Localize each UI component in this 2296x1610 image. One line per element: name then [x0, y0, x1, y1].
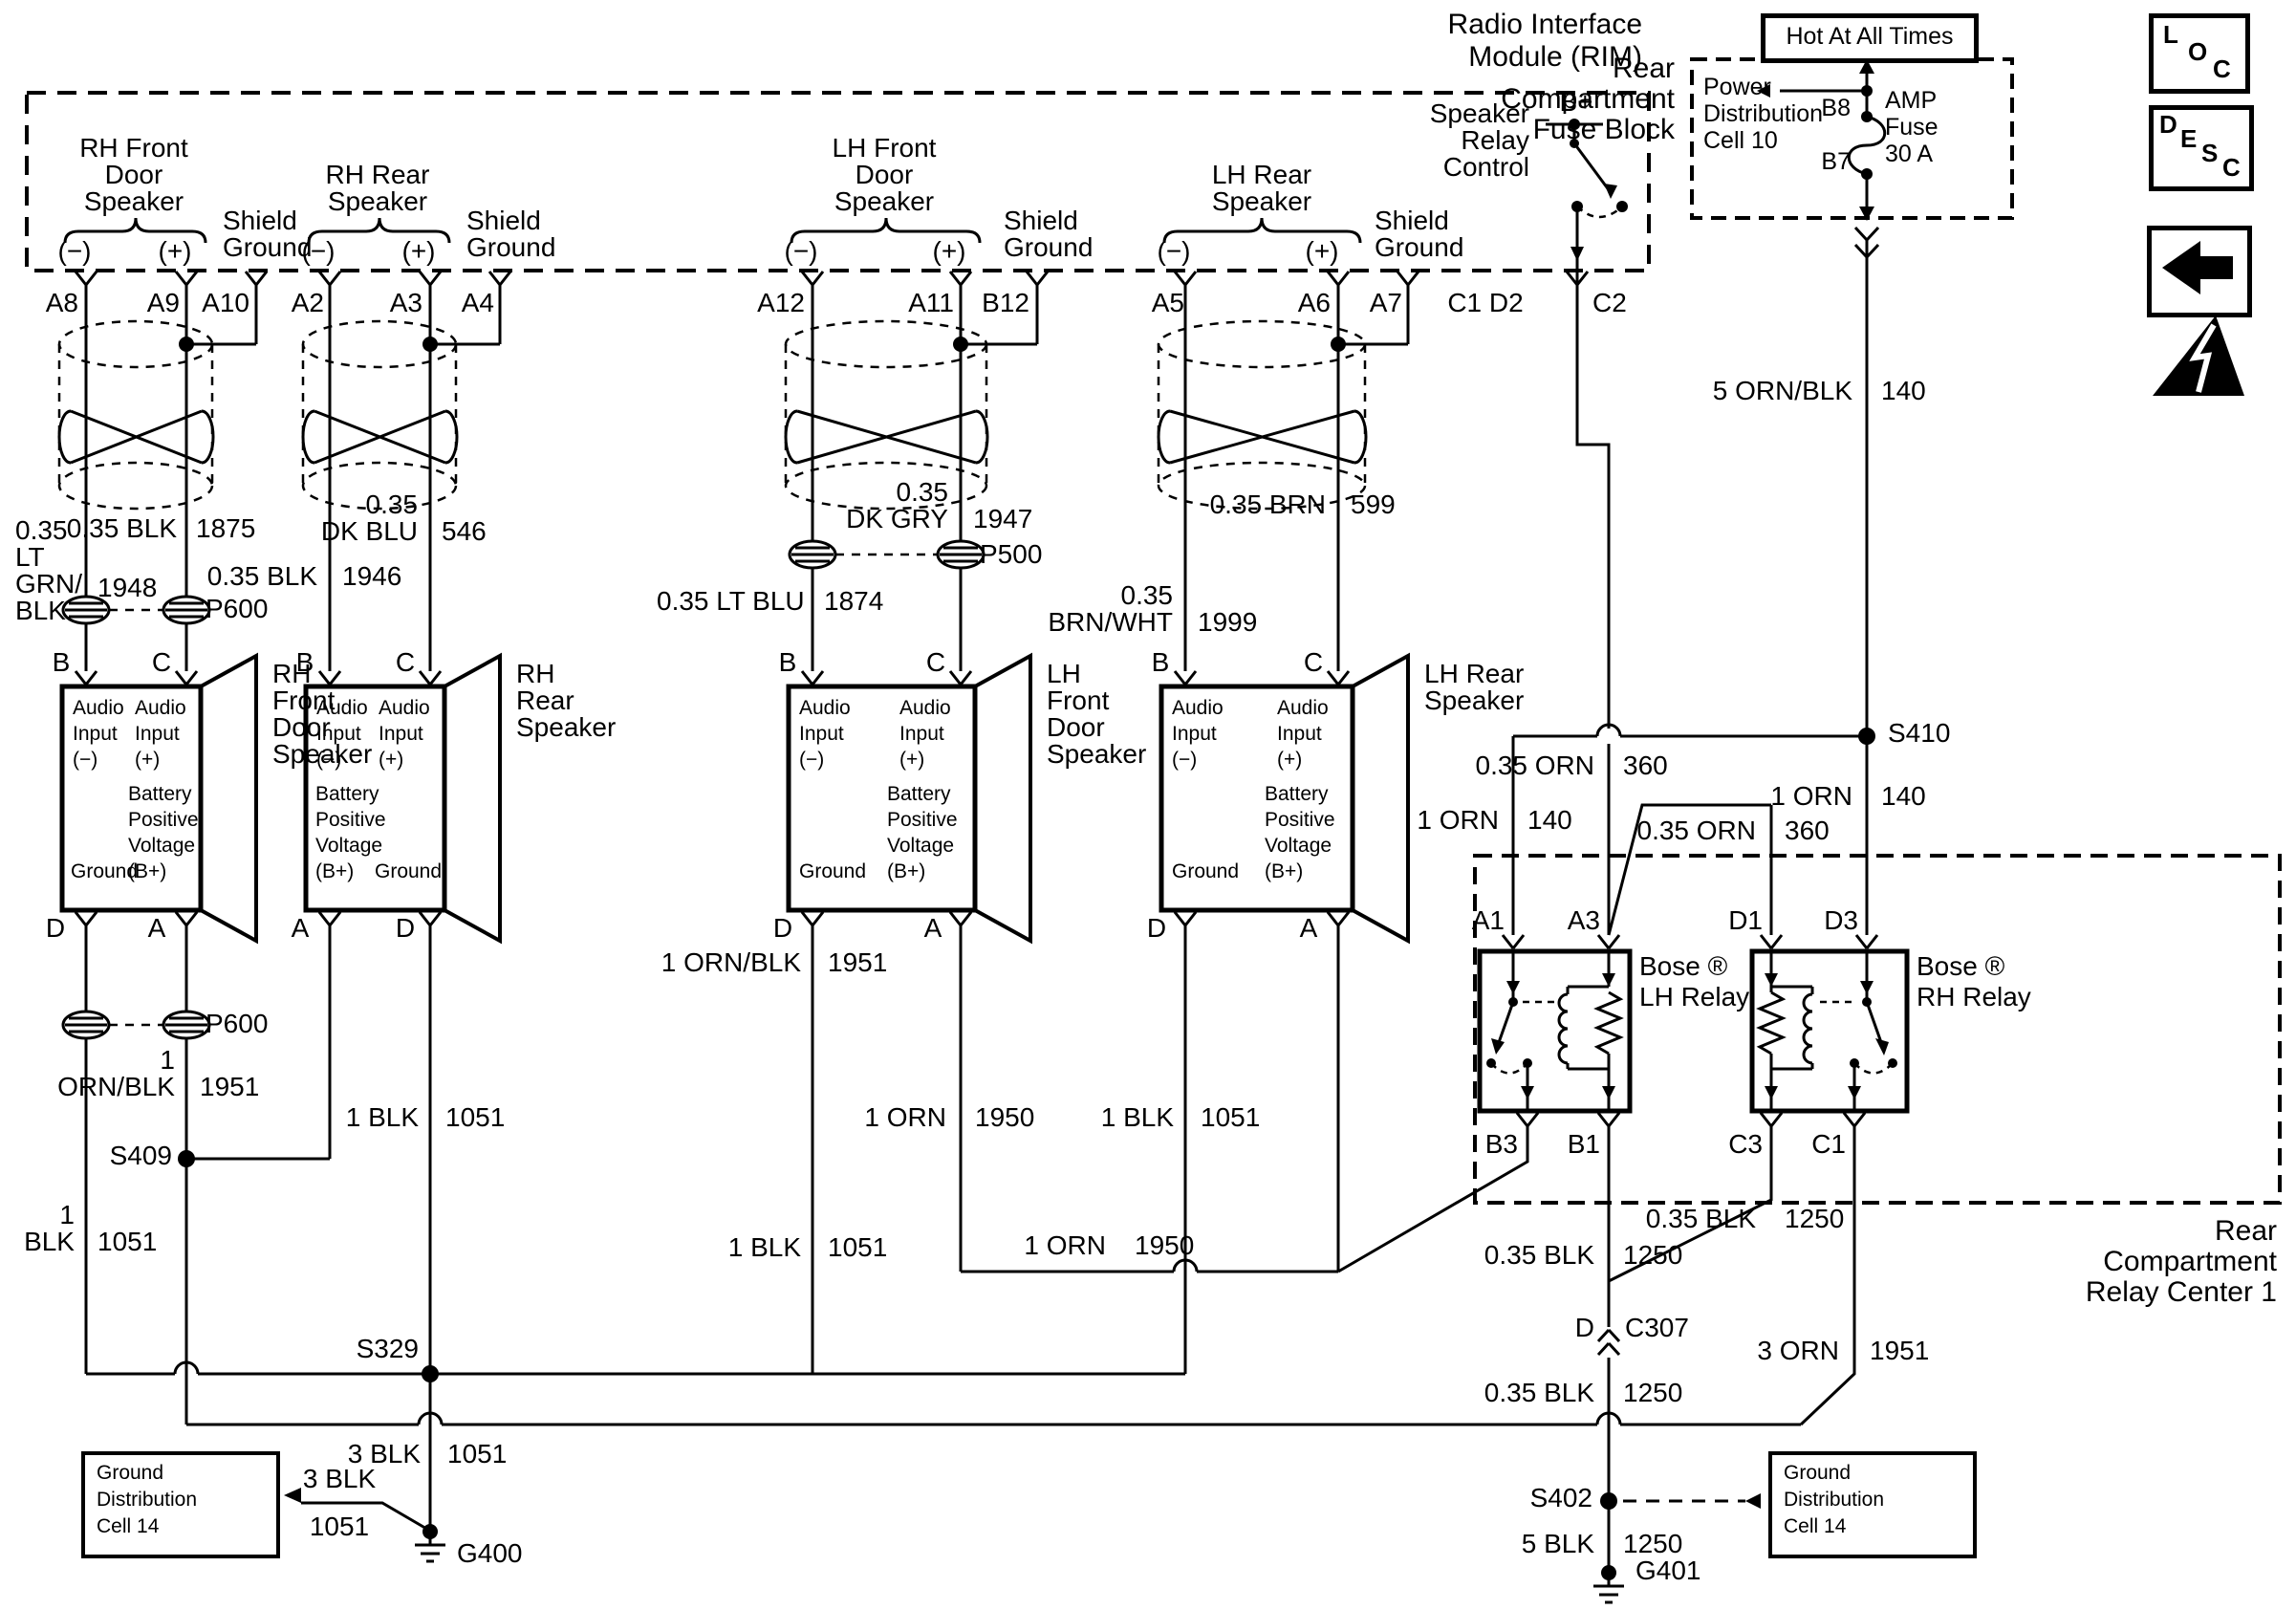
- ch4-name-2: Speaker: [1183, 187, 1340, 216]
- amp-fuse-line2: Fuse: [1885, 115, 1939, 141]
- wire-360-a: 0.35 ORN: [1461, 751, 1594, 780]
- relay-pin-a3: A3: [1556, 906, 1600, 935]
- speaker-relay-control-line3: Control: [1386, 153, 1529, 182]
- wire-360-a-num: 360: [1623, 751, 1668, 780]
- sp1-pin-b: B: [48, 648, 75, 677]
- relay-pin-a1: A1: [1461, 906, 1505, 935]
- twisted-pair-shield-2: [303, 321, 500, 509]
- relay-pin-b3: B3: [1474, 1130, 1518, 1159]
- sp2-name-3: Speaker: [516, 713, 616, 742]
- ch2-shield-2: Ground: [466, 233, 555, 262]
- gd2-line2: Distribution: [1784, 1488, 1884, 1513]
- sp2-pin-c: C: [392, 648, 419, 677]
- c307-label: C307: [1625, 1314, 1689, 1342]
- ch3-name-1: LH Front: [808, 134, 961, 163]
- twisted-pair-shield-4: [1159, 321, 1408, 509]
- wire-1874-num: 1874: [824, 587, 883, 616]
- sp3-name-4: Speaker: [1047, 740, 1146, 769]
- ch4-minus: (−): [1145, 237, 1202, 266]
- sp3-gnd: Ground: [799, 859, 866, 885]
- wire-1951-c1-num: 1951: [1870, 1337, 1929, 1365]
- wire-1951-h-num: 1951: [828, 948, 887, 977]
- fuse-icon: [1849, 117, 1885, 174]
- sp2-tr-3: (+): [379, 748, 403, 773]
- rim-pin-a12: A12: [747, 289, 805, 317]
- sp1-pin-d: D: [42, 914, 69, 943]
- ground-dist-box-2: Ground Distribution Cell 14: [1768, 1451, 1977, 1558]
- p500-label: P500: [980, 540, 1042, 569]
- rim-pin-a11: A11: [897, 289, 954, 317]
- rim-pin-b12: B12: [970, 289, 1029, 317]
- loc-letter-l: L: [2163, 20, 2178, 50]
- ch3-plus: (+): [921, 237, 978, 266]
- p600-upper-label: P600: [206, 595, 268, 623]
- sp4-pin-c: C: [1300, 648, 1327, 677]
- sp4-tr-2: Input: [1277, 722, 1322, 748]
- gd1-line2: Distribution: [97, 1488, 197, 1513]
- sp1-tl-3: (−): [73, 748, 97, 773]
- wire-1951-c1: 3 ORN: [1744, 1337, 1839, 1365]
- sp4-pin-d: D: [1143, 914, 1170, 943]
- sp2-batt-3: Voltage: [315, 834, 382, 859]
- relay-center-title-line1: Rear: [1990, 1216, 2277, 1247]
- sp1-batt-1: Battery: [128, 782, 192, 808]
- desc-letter-c: C: [2222, 153, 2241, 183]
- amp-fuse-line1: AMP: [1885, 88, 1937, 114]
- fuse-pin-b7: B7: [1803, 149, 1851, 175]
- sp2-pin-d: D: [392, 914, 419, 943]
- wire-1051-s329-num: 1051: [447, 1440, 507, 1469]
- wire-1948-num: 1948: [97, 574, 157, 602]
- rim-pin-c2: C2: [1592, 289, 1650, 317]
- ch1-plus: (+): [146, 237, 204, 266]
- sp1-pin-a: A: [143, 914, 170, 943]
- wire-1947-b: DK GRY: [824, 505, 948, 533]
- rim-pin-a2: A2: [282, 289, 324, 317]
- sp3-batt-1: Battery: [887, 782, 951, 808]
- ch3-name-3: Speaker: [808, 187, 961, 216]
- relay-center-title-line3: Relay Center 1: [1990, 1277, 2277, 1308]
- wire-1250-c3-num: 1250: [1785, 1205, 1844, 1233]
- rim-pin-chevrons: [76, 272, 1588, 285]
- wire-599: 0.35 BRN: [1197, 490, 1326, 519]
- ch1-shield-1: Shield: [223, 207, 297, 235]
- speaker-relay-control-line2: Relay: [1386, 126, 1529, 155]
- relay-pin-d3: D3: [1814, 906, 1858, 935]
- sp1-tr-3: (+): [135, 748, 160, 773]
- rim-title-line1: Radio Interface: [1327, 10, 1642, 40]
- wire-1051-a-2: BLK: [17, 1228, 75, 1256]
- ch2-name-1: RH Rear: [301, 161, 454, 189]
- sp3-tr-3: (+): [899, 748, 924, 773]
- lh-relay-name-1: Bose ®: [1639, 952, 1727, 981]
- sp4-batt-1: Battery: [1265, 782, 1329, 808]
- sp4-name-2: Speaker: [1424, 686, 1524, 715]
- wire-1948-b: LT: [15, 543, 45, 572]
- sp4-tl-3: (−): [1172, 748, 1197, 773]
- sp3-tr-1: Audio: [899, 696, 951, 722]
- sp2-name-1: RH: [516, 660, 554, 688]
- rim-pin-a8: A8: [36, 289, 78, 317]
- wire-1946-num: 1946: [342, 562, 401, 591]
- lh-relay-name-2: LH Relay: [1639, 983, 1749, 1012]
- speaker-relay-control-line1: Speaker: [1386, 99, 1529, 128]
- sp1-pin-c: C: [148, 648, 175, 677]
- sp3-tr-2: Input: [899, 722, 944, 748]
- ground-g400-label: G400: [457, 1539, 523, 1568]
- wire-1875-num: 1875: [196, 514, 255, 543]
- ch4-shield-2: Ground: [1375, 233, 1463, 262]
- sp1-tr-1: Audio: [135, 696, 186, 722]
- sp3-pin-c: C: [922, 648, 949, 677]
- sp3-tl-3: (−): [799, 748, 824, 773]
- desc-letter-s: S: [2201, 139, 2218, 168]
- sp3-name-2: Front: [1047, 686, 1109, 715]
- amp-fuse-line3: 30 A: [1885, 141, 1933, 167]
- wire-360-b-num: 360: [1785, 816, 1830, 845]
- sp2-pin-a: A: [287, 914, 314, 943]
- sp4-tl-1: Audio: [1172, 696, 1224, 722]
- wire-1999-num: 1999: [1198, 608, 1257, 637]
- rim-pin-c1d2: C1 D2: [1432, 289, 1539, 317]
- gd2-line1: Ground: [1784, 1461, 1851, 1487]
- sp3-pin-a: A: [920, 914, 946, 943]
- hot-at-all-times-label: Hot At All Times: [1765, 24, 1974, 50]
- sp2-pin-b: B: [292, 648, 318, 677]
- relay-pin-b1: B1: [1556, 1130, 1600, 1159]
- loc-icon: L O C: [2149, 13, 2250, 94]
- wire-1999-b: BRN/WHT: [1010, 608, 1173, 637]
- wire-140-a1-num: 140: [1527, 806, 1572, 835]
- sp2-batt-4: (B+): [315, 859, 354, 885]
- wire-1250-c3: 0.35 BLK: [1627, 1205, 1756, 1233]
- wire-1051-d: 1 BLK: [1078, 1103, 1174, 1132]
- wire-1951-v-a: 1: [137, 1046, 175, 1075]
- hot-at-all-times-box: Hot At All Times: [1761, 13, 1979, 63]
- rh-relay-name-1: Bose ®: [1917, 952, 2004, 981]
- loc-letter-c: C: [2213, 54, 2231, 84]
- splice-s409-label: S409: [76, 1142, 172, 1170]
- ch1-name-3: Speaker: [57, 187, 210, 216]
- wire-1951-v-num: 1951: [200, 1073, 259, 1101]
- sp2-tr-2: Input: [379, 722, 423, 748]
- rim-pin-a5: A5: [1142, 289, 1184, 317]
- wire-1051-d-num: 1051: [1201, 1103, 1260, 1132]
- sp4-tr-1: Audio: [1277, 696, 1329, 722]
- sp4-tl-2: Input: [1172, 722, 1217, 748]
- sp4-batt-2: Positive: [1265, 808, 1335, 834]
- sp3-pin-d: D: [769, 914, 796, 943]
- loc-letter-o: O: [2188, 37, 2207, 67]
- sp1-batt-3: Voltage: [128, 834, 195, 859]
- power-dist-line1: Power: [1703, 75, 1771, 100]
- desc-letter-d: D: [2159, 110, 2177, 140]
- rim-pin-a6: A6: [1289, 289, 1331, 317]
- ch3-minus: (−): [772, 237, 830, 266]
- ch4-plus: (+): [1293, 237, 1351, 266]
- p600-lower-label: P600: [206, 1010, 268, 1038]
- gd2-line3: Cell 14: [1784, 1514, 1846, 1540]
- sp3-tl-1: Audio: [799, 696, 851, 722]
- wire-1946: 0.35 BLK: [198, 562, 317, 591]
- sp2-tr-1: Audio: [379, 696, 430, 722]
- wire-360-b: 0.35 ORN: [1622, 816, 1756, 845]
- wire-1875: 0.35 BLK: [57, 514, 177, 543]
- sp3-batt-4: (B+): [887, 859, 925, 885]
- ground-dist-box-1: Ground Distribution Cell 14: [81, 1451, 280, 1558]
- wire-1051-a-num: 1051: [97, 1228, 157, 1256]
- sp2-name-2: Rear: [516, 686, 574, 715]
- wire-1950-a: 1 ORN: [854, 1103, 946, 1132]
- lh-relay-internals: [1491, 951, 1620, 1111]
- power-dist-line3: Cell 10: [1703, 128, 1778, 154]
- c307-connector: [1598, 1330, 1619, 1355]
- sp4-batt-4: (B+): [1265, 859, 1303, 885]
- sp3-batt-2: Positive: [887, 808, 958, 834]
- sp4-pin-b: B: [1147, 648, 1174, 677]
- wire-1874: 0.35 LT BLU: [657, 587, 800, 616]
- wire-140-fuse-num: 140: [1881, 377, 1926, 405]
- wire-546-b: DK BLU: [298, 517, 418, 546]
- wire-1947-num: 1947: [973, 505, 1032, 533]
- sp1-batt-2: Positive: [128, 808, 199, 834]
- wire-1051-c-num: 1051: [828, 1233, 887, 1262]
- ch1-minus: (−): [46, 237, 103, 266]
- sp2-gnd: Ground: [375, 859, 442, 885]
- wire-140-d3-num: 140: [1881, 782, 1926, 811]
- splice-s410-label: S410: [1888, 719, 1950, 748]
- sp4-name-1: LH Rear: [1424, 660, 1524, 688]
- sp3-name-3: Door: [1047, 713, 1105, 742]
- esd-warning-icon: [2153, 315, 2244, 396]
- ch2-shield-1: Shield: [466, 207, 541, 235]
- wire-1250-c307: 0.35 BLK: [1465, 1379, 1594, 1407]
- splice-s329-label: S329: [323, 1335, 419, 1363]
- fuse-pin-b8: B8: [1803, 96, 1851, 121]
- relay-pin-d1: D1: [1719, 906, 1763, 935]
- wire-1950-b: 1 ORN: [1013, 1231, 1106, 1260]
- wire-1250-c307-num: 1250: [1623, 1379, 1682, 1407]
- wire-1051-gd-2: 1051: [287, 1512, 392, 1541]
- splice-s402-label: S402: [1487, 1484, 1592, 1512]
- wire-1951-h: 1 ORN/BLK: [658, 948, 801, 977]
- wire-546-num: 546: [442, 517, 487, 546]
- rim-pin-a10: A10: [196, 289, 249, 317]
- relay-pin-c1: C1: [1802, 1130, 1846, 1159]
- gd2-arrow: [1745, 1493, 1761, 1509]
- ch2-plus: (+): [390, 237, 447, 266]
- wire-1250-b1-num: 1250: [1623, 1241, 1682, 1270]
- sp4-pin-a: A: [1295, 914, 1322, 943]
- arrowheads: [284, 59, 1889, 1509]
- wire-1948-d: BLK: [15, 597, 66, 625]
- desc-icon: D E S C: [2149, 105, 2254, 191]
- sp1-tl-1: Audio: [73, 696, 124, 722]
- relay-center-title-line2: Compartment: [1990, 1247, 2277, 1277]
- speaker-relay-control-switch: [1546, 124, 1622, 285]
- bplus-label: B+: [1553, 88, 1599, 117]
- wire-1051-gd-1: 3 BLK: [287, 1465, 392, 1493]
- rim-pin-a7: A7: [1360, 289, 1402, 317]
- sp4-gnd: Ground: [1172, 859, 1239, 885]
- ch4-name-1: LH Rear: [1183, 161, 1340, 189]
- gd1-line3: Cell 14: [97, 1514, 159, 1540]
- wire-1051-b: 1 BLK: [323, 1103, 419, 1132]
- rh-relay-name-2: RH Relay: [1917, 983, 2031, 1012]
- gd1-line1: Ground: [97, 1461, 163, 1487]
- fuse-block-title-line1: Rear: [1484, 54, 1675, 84]
- sp1-gnd: Ground: [71, 859, 138, 885]
- ch4-shield-1: Shield: [1375, 207, 1449, 235]
- ch3-shield-2: Ground: [1004, 233, 1093, 262]
- speaker-wires-lower: [86, 925, 1338, 1528]
- wire-1999-a: 0.35: [1116, 581, 1173, 610]
- sp2-batt-2: Positive: [315, 808, 386, 834]
- wire-140-fuse: 5 ORN/BLK: [1700, 377, 1852, 405]
- sp3-tl-2: Input: [799, 722, 844, 748]
- wire-1948-c: GRN/: [15, 570, 82, 598]
- back-arrow-box: [2147, 226, 2252, 317]
- sp4-tr-3: (+): [1277, 748, 1302, 773]
- wire-546-a: 0.35: [360, 490, 418, 519]
- rim-pin-a4: A4: [444, 289, 494, 317]
- c307-pin-d-label: D: [1558, 1314, 1594, 1342]
- ch1-name-1: RH Front: [57, 134, 210, 163]
- p600-lower: [63, 1012, 209, 1038]
- wiring-diagram-page: Radio Interface Module (RIM) Rear Compar…: [0, 0, 2296, 1610]
- sp4-batt-3: Voltage: [1265, 834, 1332, 859]
- sp1-tl-2: Input: [73, 722, 118, 748]
- ground-g401-label: G401: [1635, 1556, 1701, 1585]
- wire-1051-c: 1 BLK: [705, 1233, 801, 1262]
- ch3-name-2: Door: [808, 161, 961, 189]
- rh-relay-internals: [1760, 951, 1893, 1111]
- sp2-tl-2: Input: [316, 722, 361, 748]
- desc-letter-e: E: [2180, 124, 2197, 154]
- wire-1051-b-num: 1051: [445, 1103, 505, 1132]
- rim-pin-a9: A9: [134, 289, 180, 317]
- sp1-tr-2: Input: [135, 722, 180, 748]
- sp3-name-1: LH: [1047, 660, 1081, 688]
- ch2-name-2: Speaker: [301, 187, 454, 216]
- sp2-tl-3: (−): [316, 748, 341, 773]
- speaker-box-pin-chevrons: [76, 671, 1349, 925]
- sp2-tl-1: Audio: [316, 696, 368, 722]
- rim-pin-a3: A3: [380, 289, 422, 317]
- wire-1950-b-num: 1950: [1135, 1231, 1194, 1260]
- ch3-shield-1: Shield: [1004, 207, 1078, 235]
- sp2-batt-1: Battery: [315, 782, 379, 808]
- wire-599-num: 599: [1351, 490, 1396, 519]
- relay-pin-c3: C3: [1719, 1130, 1763, 1159]
- wire-140-d3: 1 ORN: [1757, 782, 1852, 811]
- ch1-name-2: Door: [57, 161, 210, 189]
- wire-1250-g: 5 BLK: [1494, 1530, 1594, 1558]
- wire-1947-a: 0.35: [891, 478, 948, 507]
- wire-1051-a-1: 1: [36, 1201, 75, 1229]
- sp3-pin-b: B: [774, 648, 801, 677]
- wire-1250-g-num: 1250: [1623, 1530, 1682, 1558]
- wire-140-a1: 1 ORN: [1403, 806, 1499, 835]
- ch2-minus: (−): [290, 237, 347, 266]
- wire-1951-v-b: ORN/BLK: [46, 1073, 175, 1101]
- wire-1950-a-num: 1950: [975, 1103, 1034, 1132]
- sp3-batt-3: Voltage: [887, 834, 954, 859]
- twisted-pair-shield-1: [59, 321, 256, 509]
- wire-1250-b1: 0.35 BLK: [1465, 1241, 1594, 1270]
